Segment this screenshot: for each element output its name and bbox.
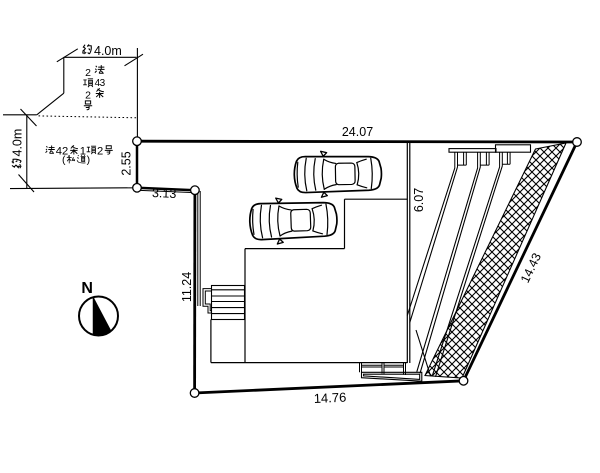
svg-text:24.07: 24.07 bbox=[342, 125, 373, 139]
svg-text:3.13: 3.13 bbox=[152, 186, 177, 201]
svg-text:2.55: 2.55 bbox=[120, 151, 134, 175]
svg-text:2: 2 bbox=[97, 145, 103, 157]
svg-text:14.76: 14.76 bbox=[313, 390, 346, 406]
svg-text:(: ( bbox=[62, 154, 66, 166]
svg-text:2: 2 bbox=[85, 89, 91, 101]
svg-text:6.07: 6.07 bbox=[412, 188, 426, 212]
svg-text:): ) bbox=[87, 154, 91, 166]
svg-text:N: N bbox=[81, 280, 93, 297]
svg-text:4.0m: 4.0m bbox=[11, 129, 25, 157]
svg-text:1: 1 bbox=[80, 145, 86, 157]
svg-text:43: 43 bbox=[95, 78, 106, 89]
svg-text:2: 2 bbox=[85, 67, 91, 79]
svg-text:4.0m: 4.0m bbox=[94, 44, 122, 58]
svg-text:11.24: 11.24 bbox=[180, 272, 194, 302]
